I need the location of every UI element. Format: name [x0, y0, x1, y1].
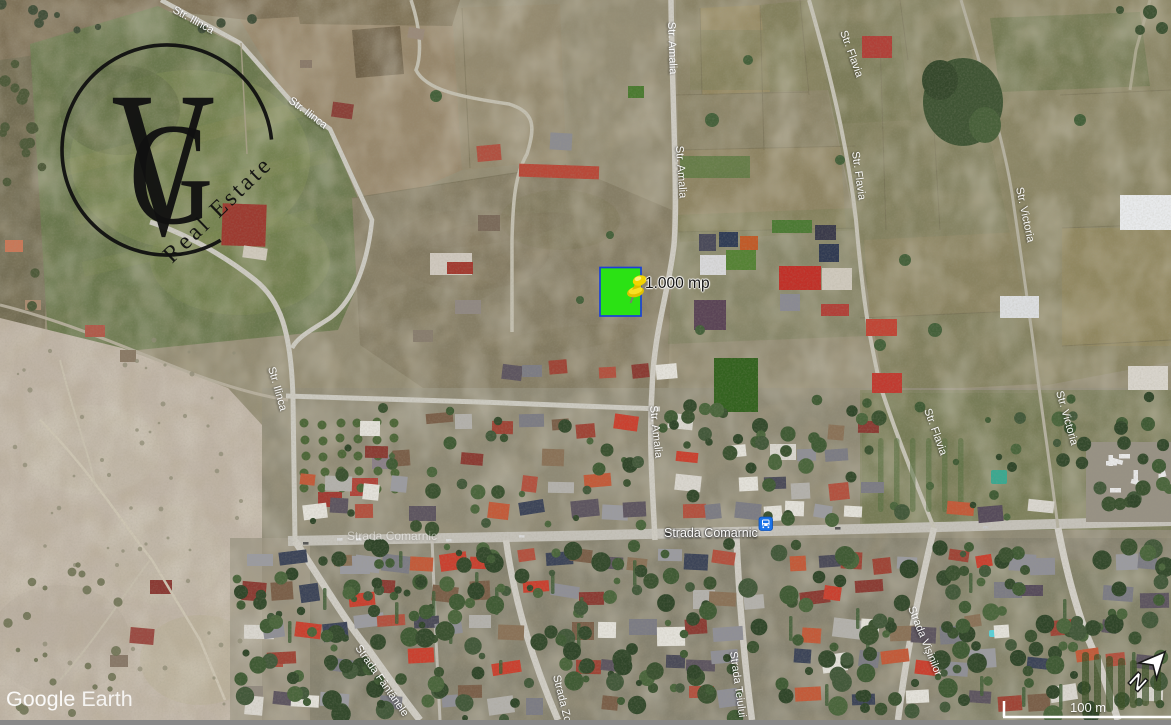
svg-text:100 m: 100 m — [1070, 700, 1106, 715]
svg-text:Str. Amalia: Str. Amalia — [665, 22, 679, 76]
svg-text:1.000 mp: 1.000 mp — [645, 275, 710, 292]
svg-text:Strada Comarnic: Strada Comarnic — [664, 526, 758, 540]
svg-text:Strada Comarnic: Strada Comarnic — [347, 529, 437, 543]
svg-text:Google Earth: Google Earth — [6, 687, 133, 711]
